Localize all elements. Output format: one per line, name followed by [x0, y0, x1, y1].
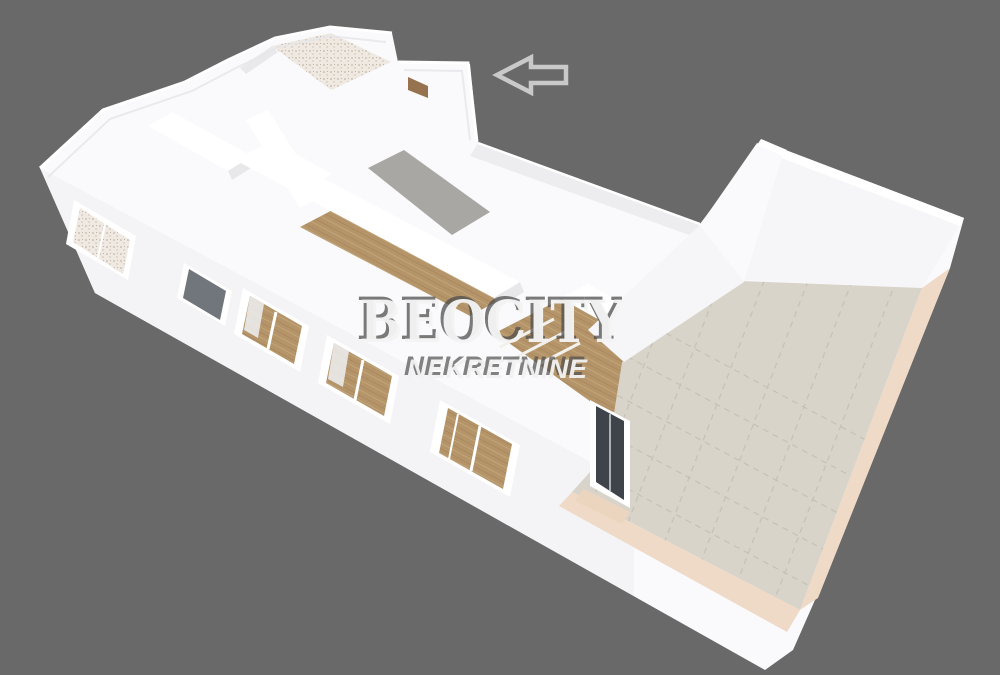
floorplan-screenshot: BEOCITY BEOCITY NEKRETNINE NEKRETNINE [0, 0, 1000, 675]
watermark-brand: BEOCITY [360, 288, 626, 356]
floorplan-3d-render: BEOCITY BEOCITY NEKRETNINE NEKRETNINE [0, 0, 1000, 675]
watermark-subtitle: NEKRETNINE [407, 354, 588, 384]
